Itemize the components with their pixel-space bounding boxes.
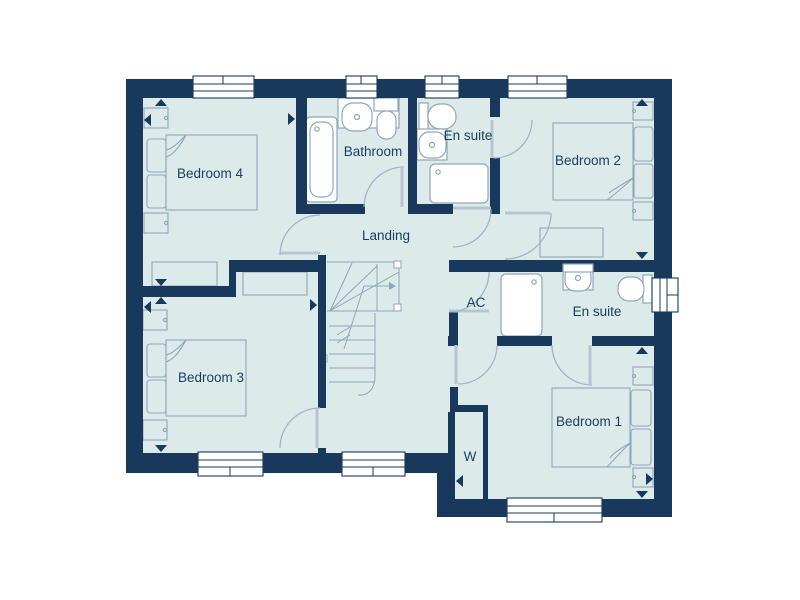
shower <box>501 274 542 336</box>
room-label-ac: AC <box>467 295 486 310</box>
bathtub <box>306 117 337 202</box>
room-label-wardrobe: W <box>464 449 477 464</box>
basin-counter <box>563 264 593 272</box>
window <box>342 452 405 476</box>
room-label-bedroom1: Bedroom 1 <box>556 414 622 429</box>
window <box>508 76 567 98</box>
toilet <box>374 98 398 139</box>
toilet <box>419 103 456 130</box>
window <box>425 76 459 98</box>
shower <box>430 164 488 203</box>
room-label-bedroom3: Bedroom 3 <box>178 370 244 385</box>
floor-plan: Bedroom 4 Bathroom En suite Bedroom 2 La… <box>0 0 800 600</box>
window <box>193 76 254 98</box>
room-label-bathroom: Bathroom <box>344 144 403 159</box>
toilet <box>618 275 652 303</box>
basin <box>417 129 447 160</box>
room-label-bedroom4: Bedroom 4 <box>177 166 244 181</box>
room-label-bedroom2: Bedroom 2 <box>555 153 621 168</box>
room-label-ensuite-right: En suite <box>573 304 622 319</box>
window <box>507 498 602 522</box>
floor-plan-drawing: Bedroom 4 Bathroom En suite Bedroom 2 La… <box>0 0 800 600</box>
window <box>652 278 678 312</box>
window <box>346 76 377 98</box>
room-label-landing: Landing <box>362 228 410 243</box>
window <box>198 452 263 476</box>
room-label-ensuite-top: En suite <box>444 128 493 143</box>
